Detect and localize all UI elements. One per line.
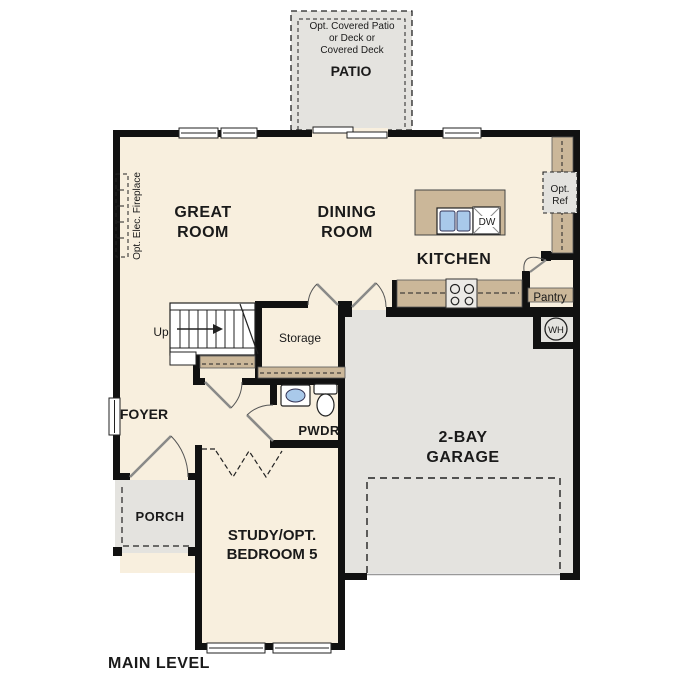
- patio-opt-label-2: or Deck or: [329, 33, 376, 44]
- wall-closet-bottom-a: [193, 378, 205, 385]
- stair-landing: [170, 352, 196, 365]
- powder-label: PWDR: [298, 423, 340, 438]
- wall-garage-top-post: [338, 307, 352, 317]
- wall-garage-study-divider: [338, 307, 345, 650]
- pantry-label: Pantry: [533, 292, 566, 304]
- window-great-room-2: [221, 128, 257, 138]
- dishwasher-label: DW: [479, 217, 496, 228]
- patio-opt-label-1: Opt. Covered Patio: [309, 21, 394, 32]
- wall-garage-bottom-left: [345, 573, 367, 580]
- wall-garage-top: [386, 307, 580, 317]
- dishwasher: DW: [473, 207, 500, 234]
- floor-plan-page: Opt. Covered Patio or Deck or Covered De…: [0, 0, 687, 687]
- patio-opt-label-3: Covered Deck: [320, 45, 384, 56]
- plan-title: MAIN LEVEL: [108, 655, 210, 672]
- wall-storage-top-post: [338, 301, 352, 308]
- cooktop: [446, 279, 477, 308]
- wall-garage-bottom-right: [560, 573, 580, 580]
- foyer-label: FOYER: [120, 406, 168, 422]
- wall-counter-cap-left: [392, 280, 397, 307]
- wall-study-left: [195, 445, 202, 650]
- window-foyer: [109, 398, 120, 435]
- patio-label: PATIO: [331, 63, 372, 79]
- closet-shelf: [200, 356, 255, 368]
- storage-label: Storage: [279, 331, 321, 345]
- window-dining: [443, 128, 481, 138]
- porch-post-left: [113, 547, 122, 556]
- stairs-up-label: Up: [153, 325, 169, 339]
- dining-room-label-1: DINING: [318, 204, 377, 221]
- water-heater-label: WH: [548, 325, 564, 336]
- porch-label: PORCH: [136, 509, 185, 524]
- great-room-label-2: ROOM: [177, 224, 229, 241]
- garage-door-opening: [367, 573, 560, 580]
- study-label-2: BEDROOM 5: [227, 546, 318, 563]
- window-great-room-1: [179, 128, 218, 138]
- wall-pwdr-bottom: [270, 440, 345, 448]
- wall-pwdr-left-a: [270, 385, 277, 405]
- garage-label-2: GARAGE: [426, 449, 499, 466]
- wall-wh-bottom: [533, 342, 573, 349]
- opt-ref-label-2: Ref: [552, 196, 568, 207]
- opt-ref-label-1: Opt.: [551, 184, 570, 195]
- wall-storage-top: [255, 301, 308, 308]
- kitchen-label: KITCHEN: [417, 251, 492, 268]
- vanity-sink: [281, 385, 310, 406]
- kitchen-island: DW: [415, 190, 505, 235]
- window-study-2: [273, 643, 331, 653]
- island-sink: [437, 208, 473, 234]
- opt-ref: Opt. Ref: [543, 172, 577, 213]
- fireplace-label: Opt. Elec. Fireplace: [132, 172, 143, 260]
- study-label-1: STUDY/OPT.: [228, 527, 316, 544]
- floor-plan: Opt. Covered Patio or Deck or Covered De…: [0, 0, 687, 687]
- sliding-patio-door: [312, 127, 388, 139]
- great-room-label-1: GREAT: [174, 204, 231, 221]
- dining-room-label-2: ROOM: [321, 224, 373, 241]
- wall-foyer-bottom-left: [113, 473, 130, 480]
- window-study-1: [207, 643, 265, 653]
- garage-label-1: 2-BAY: [438, 429, 487, 446]
- patio-area: Opt. Covered Patio or Deck or Covered De…: [291, 11, 412, 130]
